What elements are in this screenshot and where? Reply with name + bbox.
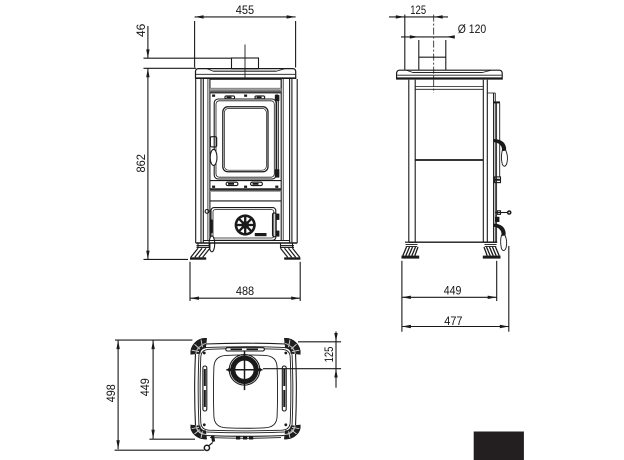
svg-text:455: 455 [236,3,255,17]
svg-text:449: 449 [444,284,462,298]
svg-text:449: 449 [138,378,152,396]
svg-text:862: 862 [134,154,148,173]
svg-text:Ø 120: Ø 120 [458,22,487,36]
svg-text:498: 498 [104,384,118,402]
svg-text:46: 46 [134,24,148,37]
svg-text:125: 125 [322,346,336,362]
svg-text:488: 488 [236,284,254,298]
svg-text:125: 125 [410,3,426,17]
svg-text:477: 477 [444,314,462,328]
